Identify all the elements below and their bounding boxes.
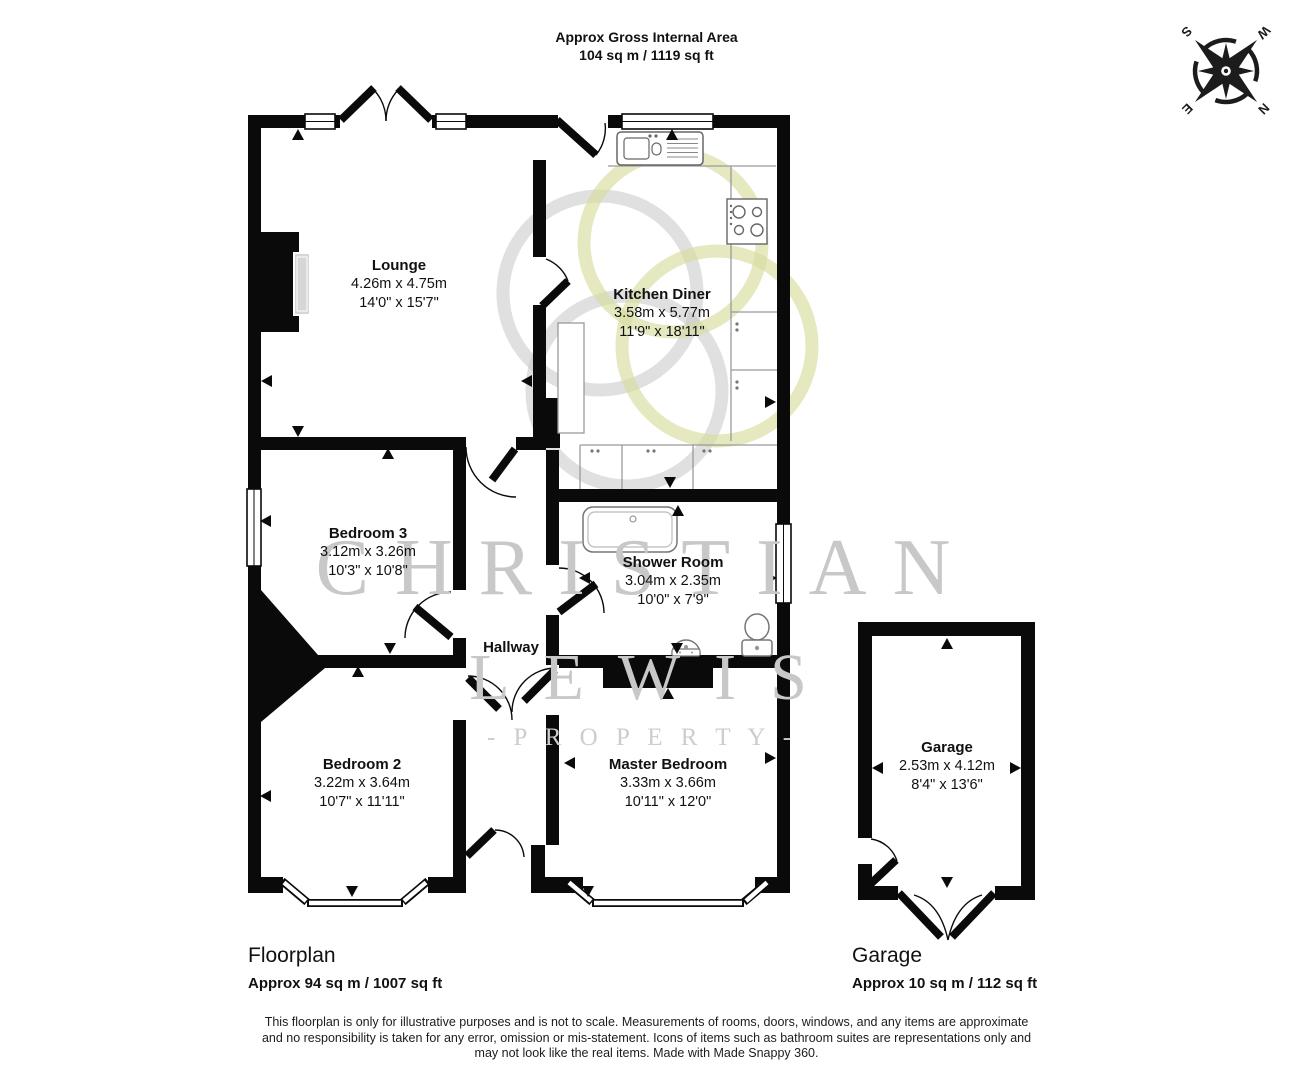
room-name: Shower Room xyxy=(623,553,724,572)
room-name: Garage xyxy=(899,738,995,757)
room-label-master-bedroom: Master Bedroom 3.33m x 3.66m 10'11" x 12… xyxy=(609,755,727,812)
garage-footer: Garage Approx 10 sq m / 112 sq ft xyxy=(852,944,1037,992)
room-dim-metric: 3.22m x 3.64m xyxy=(314,774,410,793)
room-dim-imperial: 10'7" x 11'11" xyxy=(314,793,410,812)
room-dim-metric: 4.26m x 4.75m xyxy=(351,275,447,294)
floorplan-footer: Floorplan Approx 94 sq m / 1007 sq ft xyxy=(248,944,442,992)
floorplan-label: Floorplan xyxy=(248,944,442,968)
room-dim-imperial: 10'3" x 10'8" xyxy=(320,562,416,581)
room-dim-metric: 3.33m x 3.66m xyxy=(609,774,727,793)
room-name: Bedroom 3 xyxy=(320,524,416,543)
room-name: Lounge xyxy=(351,256,447,275)
room-name: Kitchen Diner xyxy=(613,285,711,304)
room-name: Master Bedroom xyxy=(609,755,727,774)
room-label-garage: Garage 2.53m x 4.12m 8'4" x 13'6" xyxy=(899,738,995,795)
disclaimer-line1: This floorplan is only for illustrative … xyxy=(0,1015,1293,1031)
room-dim-imperial: 11'9" x 18'11" xyxy=(613,323,711,342)
room-dim-metric: 3.12m x 3.26m xyxy=(320,543,416,562)
watermark-line3: - P R O P E R T Y - xyxy=(487,724,797,752)
room-label-hallway: Hallway xyxy=(483,638,539,657)
room-name: Hallway xyxy=(483,638,539,657)
area-title: Approx Gross Internal Area xyxy=(0,28,1293,46)
garage-label: Garage xyxy=(852,944,1037,968)
fireplace-icon xyxy=(294,253,310,315)
room-label-shower-room: Shower Room 3.04m x 2.35m 10'0" x 7'9" xyxy=(623,553,724,610)
disclaimer-line3: may not look like the real items. Made w… xyxy=(0,1046,1293,1062)
room-dim-metric: 3.58m x 5.77m xyxy=(613,304,711,323)
area-value: 104 sq m / 1119 sq ft xyxy=(0,46,1293,64)
room-label-lounge: Lounge 4.26m x 4.75m 14'0" x 15'7" xyxy=(351,256,447,313)
floorplan-area: Approx 94 sq m / 1007 sq ft xyxy=(248,975,442,992)
room-label-bedroom-3: Bedroom 3 3.12m x 3.26m 10'3" x 10'8" xyxy=(320,524,416,581)
sink-icon xyxy=(617,132,703,165)
room-name: Bedroom 2 xyxy=(314,755,410,774)
room-dim-imperial: 10'0" x 7'9" xyxy=(623,591,724,610)
compass-e: E xyxy=(1179,100,1196,117)
disclaimer-line2: and no responsibility is taken for any e… xyxy=(0,1031,1293,1047)
room-dim-metric: 3.04m x 2.35m xyxy=(623,572,724,591)
compass-n: N xyxy=(1255,100,1272,117)
floorplan-page: CHRISTIAN LEWIS - P R O P E R T Y - xyxy=(0,0,1293,1080)
room-dim-imperial: 10'11" x 12'0" xyxy=(609,793,727,812)
compass-icon: N E S W xyxy=(1140,0,1293,156)
disclaimer: This floorplan is only for illustrative … xyxy=(0,1015,1293,1062)
room-label-bedroom-2: Bedroom 2 3.22m x 3.64m 10'7" x 11'11" xyxy=(314,755,410,812)
garage-area: Approx 10 sq m / 112 sq ft xyxy=(852,975,1037,992)
room-dim-metric: 2.53m x 4.12m xyxy=(899,757,995,776)
hob-icon xyxy=(727,199,767,244)
room-dim-imperial: 8'4" x 13'6" xyxy=(899,776,995,795)
room-label-kitchen-diner: Kitchen Diner 3.58m x 5.77m 11'9" x 18'1… xyxy=(613,285,711,342)
room-dim-imperial: 14'0" x 15'7" xyxy=(351,294,447,313)
gross-internal-area-title: Approx Gross Internal Area 104 sq m / 11… xyxy=(0,28,1293,64)
